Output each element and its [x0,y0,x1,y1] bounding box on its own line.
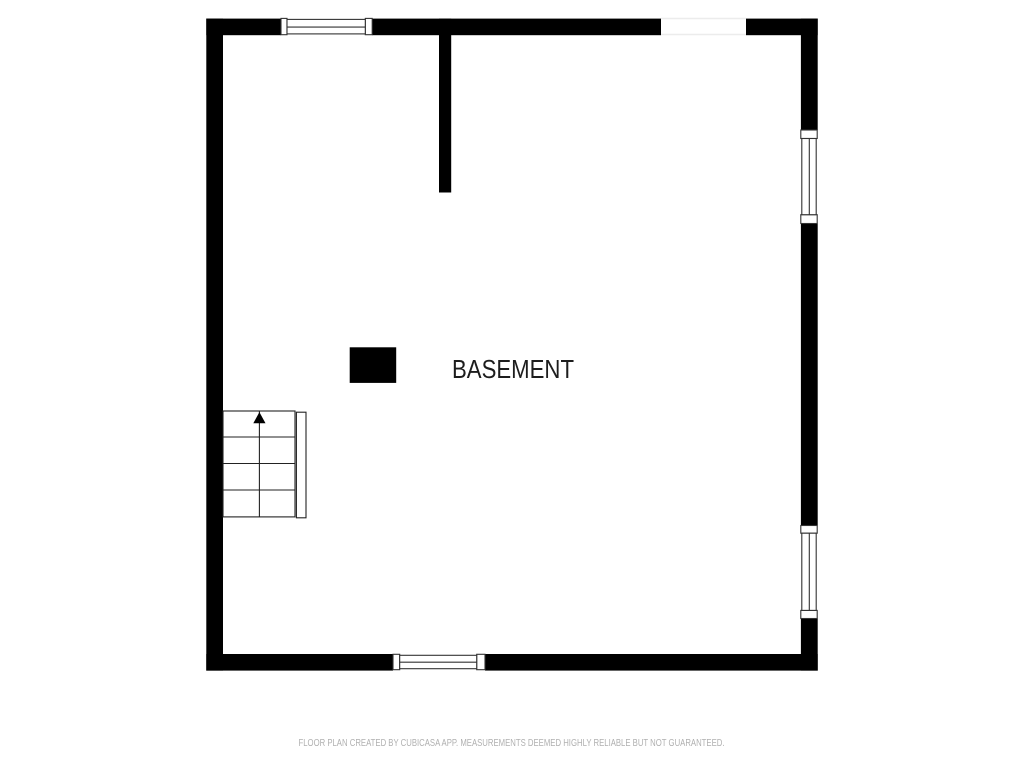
svg-text:FLOOR PLAN CREATED BY CUBICASA: FLOOR PLAN CREATED BY CUBICASA APP. MEAS… [299,738,725,749]
svg-text:BASEMENT: BASEMENT [452,354,574,384]
